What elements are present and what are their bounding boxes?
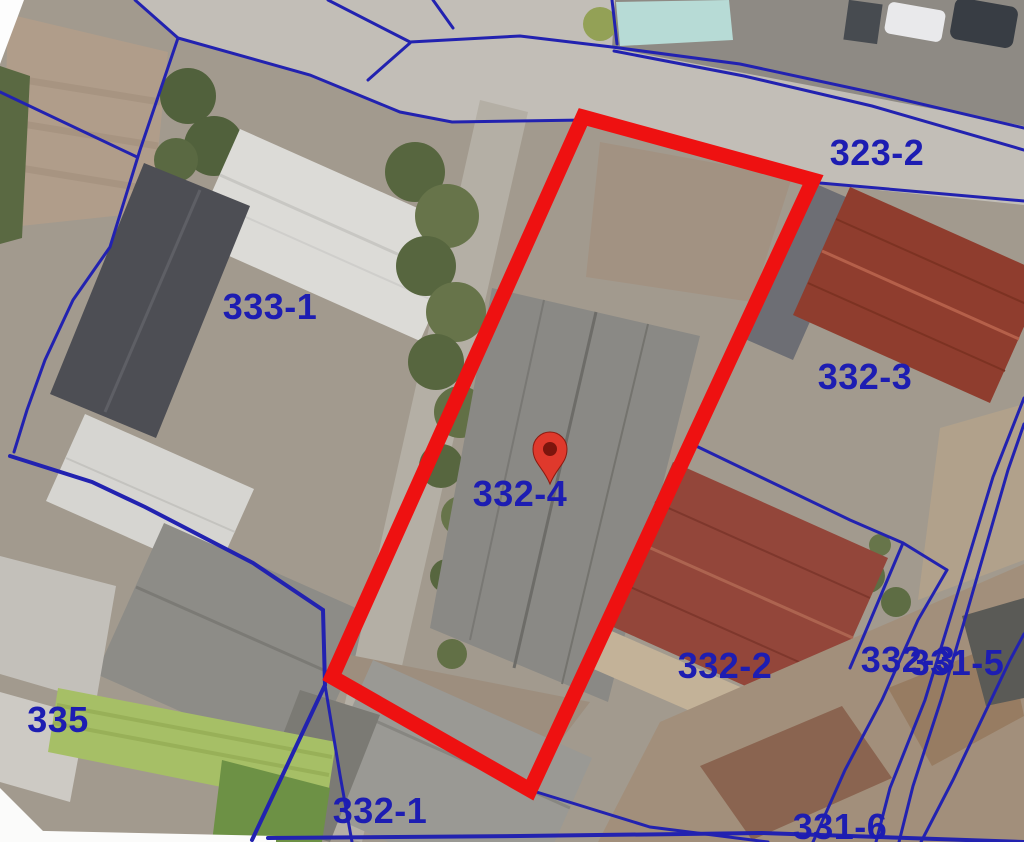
parcel-label-332-3: 332-3 <box>818 356 913 397</box>
parcel-label-332-2: 332-2 <box>678 645 773 686</box>
map-image: 323-2 333-1 332-4 332-3 332-2 332-3 331-… <box>0 0 1024 842</box>
parcel-label-332-4: 332-4 <box>473 473 568 514</box>
parcel-label-332-1: 332-1 <box>333 790 428 831</box>
parcel-label-335: 335 <box>27 699 89 740</box>
aerial-photo-layer <box>0 0 1024 842</box>
parcel-label-323-2: 323-2 <box>830 132 925 173</box>
parcel-label-333-1: 333-1 <box>223 286 318 327</box>
parcel-label-331-6: 331-6 <box>793 806 888 842</box>
parcel-label-331-5: 331-5 <box>910 642 1005 683</box>
cadastral-map-canvas[interactable]: 323-2 333-1 332-4 332-3 332-2 332-3 331-… <box>0 0 1024 842</box>
